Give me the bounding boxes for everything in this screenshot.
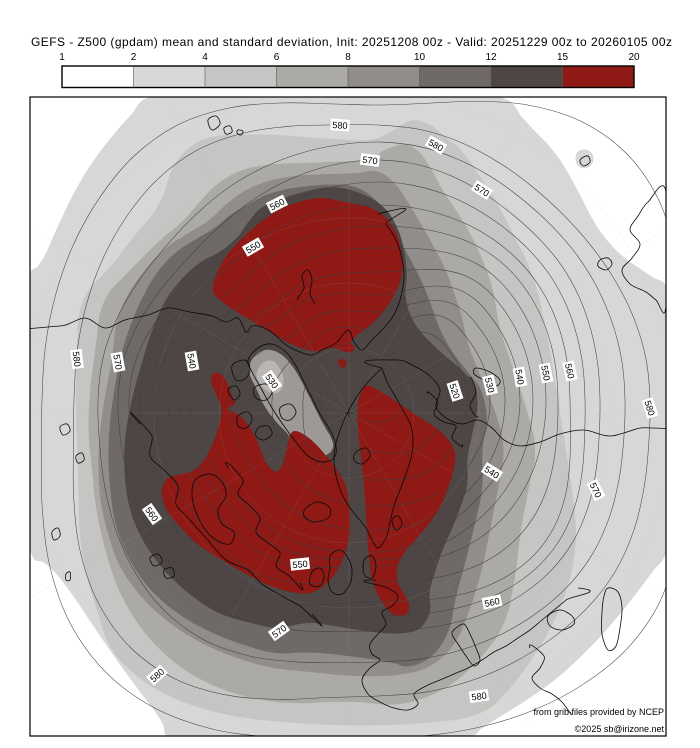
svg-text:580: 580 <box>332 120 348 131</box>
svg-text:10: 10 <box>414 52 426 63</box>
svg-text:570: 570 <box>362 155 378 167</box>
svg-text:580: 580 <box>71 351 83 367</box>
svg-text:12: 12 <box>485 52 497 63</box>
svg-text:1: 1 <box>59 52 65 63</box>
svg-text:8: 8 <box>345 52 351 63</box>
svg-text:2: 2 <box>131 52 137 63</box>
svg-text:GEFS - Z500 (gpdam) mean and s: GEFS - Z500 (gpdam) mean and standard de… <box>31 35 672 49</box>
svg-text:580: 580 <box>471 690 488 702</box>
svg-text:550: 550 <box>292 559 308 571</box>
svg-text:20: 20 <box>628 52 640 63</box>
svg-text:6: 6 <box>274 52 280 63</box>
svg-text:4: 4 <box>202 52 208 63</box>
svg-text:©2025 sb@irizone.net: ©2025 sb@irizone.net <box>575 724 665 734</box>
svg-text:from grib files provided by NC: from grib files provided by NCEP <box>533 707 664 717</box>
svg-text:15: 15 <box>557 52 569 63</box>
